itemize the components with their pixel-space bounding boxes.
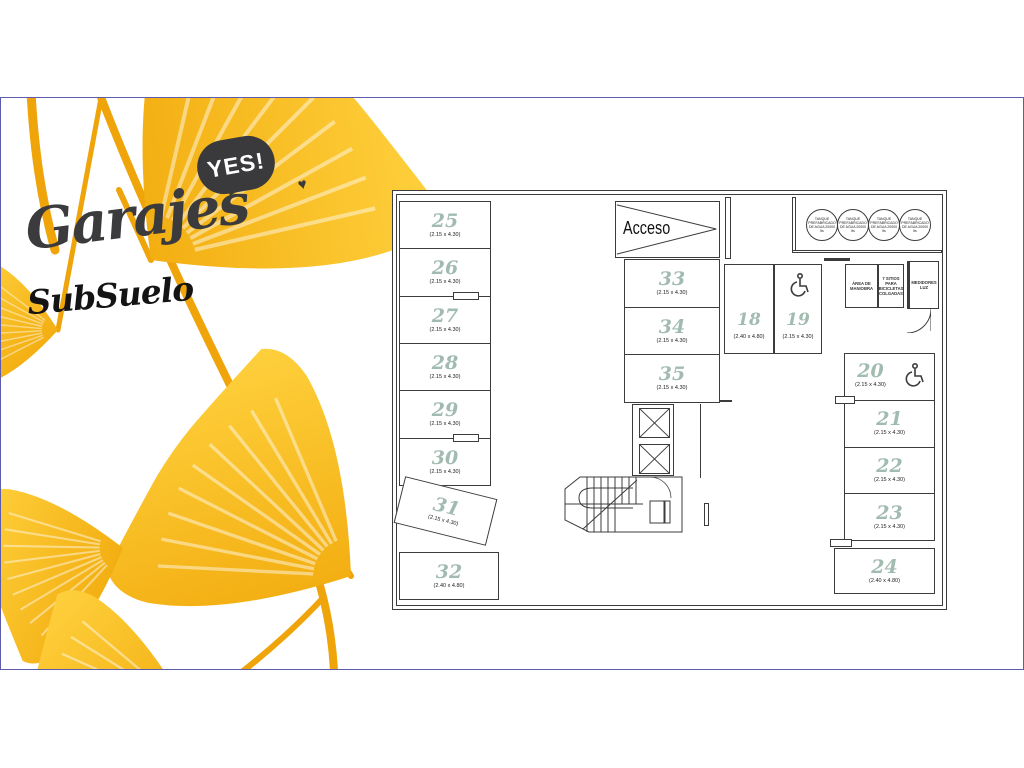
stall-dims: (2.15 x 4.30): [775, 335, 821, 341]
floor-plan: 25 (2.15 x 4.30) 26 (2.15 x 4.30) 27 (2.…: [392, 190, 947, 610]
wheelchair-icon: [787, 272, 811, 298]
stall-26: 26 (2.15 x 4.30): [400, 249, 490, 296]
brand-subtitle: SubSuelo: [26, 269, 195, 322]
stall-number: 29: [432, 401, 458, 420]
stall-dims: (2.15 x 4.30): [430, 233, 461, 239]
heart-icon: ♥: [296, 175, 309, 194]
stall-number: 33: [659, 270, 685, 289]
right-stall-column: 20 (2.15 x 4.30) 21 (2.15 x 4.30) 22 (2.…: [844, 353, 935, 541]
wall-stub: [720, 400, 732, 402]
stall-dims: (2.15 x 4.30): [430, 280, 461, 286]
stall-dims: (2.15 x 4.30): [874, 478, 905, 484]
stall-dims: (2.15 x 4.30): [657, 291, 688, 297]
corridor-wall: [700, 404, 701, 478]
brand-title: Garajes: [22, 171, 252, 264]
stall-34: 34 (2.15 x 4.30): [625, 308, 719, 356]
stall-21: 21 (2.15 x 4.30): [845, 401, 934, 448]
stall-29: 29 (2.15 x 4.30): [400, 391, 490, 438]
column-marker: [830, 539, 852, 547]
water-tank: TANQUE PREFABRICADO DE AGUA 20000 lts: [837, 209, 869, 241]
left-stall-column: 25 (2.15 x 4.30) 26 (2.15 x 4.30) 27 (2.…: [399, 201, 491, 486]
stall-dims: (2.40 x 4.80): [869, 579, 900, 585]
elevator-car: [639, 408, 670, 438]
room-medidores: MEDIDORES LUZ: [907, 261, 939, 309]
wall-stub: [824, 258, 850, 261]
acceso-ramp: Acceso: [615, 201, 720, 258]
stall-number: 26: [432, 259, 458, 278]
stall-number: 28: [432, 354, 458, 373]
stall-20: 20 (2.15 x 4.30): [845, 354, 934, 401]
stall-dims: (2.15 x 4.30): [430, 328, 461, 334]
tank-room-wall-left: [792, 197, 796, 253]
wall-segment: [725, 197, 731, 259]
flyer-frame: YES! ♥ Garajes SubSuelo 25 (2.15 x 4.30)…: [0, 97, 1024, 670]
stall-35: 35 (2.15 x 4.30): [625, 355, 719, 402]
pillar: [704, 503, 709, 526]
stall-number: 18: [725, 312, 773, 329]
stall-27: 27 (2.15 x 4.30): [400, 297, 490, 344]
stall-dims: (2.40 x 4.80): [725, 335, 773, 341]
stall-number: 22: [876, 457, 902, 476]
elevator-car: [639, 444, 670, 474]
stall-28: 28 (2.15 x 4.30): [400, 344, 490, 391]
tank-room-wall-bottom: [792, 250, 942, 253]
door-arc: [907, 309, 931, 333]
stall-dims: (2.40 x 4.80): [434, 584, 465, 590]
stall-23: 23 (2.15 x 4.30): [845, 494, 934, 540]
water-tank: TANQUE PREFABRICADO DE AGUA 20000 lts: [868, 209, 900, 241]
stall-19: 19 (2.15 x 4.30): [774, 264, 822, 354]
acceso-label: Acceso: [623, 218, 670, 239]
stall-number: 19: [775, 312, 821, 329]
stall-dims: (2.15 x 4.30): [874, 431, 905, 437]
column-marker: [453, 292, 479, 300]
stall-number: 24: [871, 558, 897, 577]
room-area-maniobra: ÁREA DE MANIOBRA: [845, 264, 878, 308]
stall-number: 34: [659, 318, 685, 337]
stall-number: 21: [876, 410, 902, 429]
stall-number: 23: [876, 504, 902, 523]
water-tank: TANQUE PREFABRICADO DE AGUA 20000 lts: [899, 209, 931, 241]
stall-dims: (2.15 x 4.30): [430, 470, 461, 476]
stall-number: 20: [857, 362, 883, 381]
stall-number: 30: [432, 449, 458, 468]
stall-22: 22 (2.15 x 4.30): [845, 448, 934, 495]
water-tank: TANQUE PREFABRICADO DE AGUA 20000 lts: [806, 209, 838, 241]
stall-dims: (2.15 x 4.30): [874, 525, 905, 531]
stall-number: 27: [432, 307, 458, 326]
stall-dims: (2.15 x 4.30): [657, 386, 688, 392]
stall-24: 24 (2.40 x 4.80): [834, 548, 935, 594]
stall-dims: (2.15 x 4.30): [657, 339, 688, 345]
stall-25: 25 (2.15 x 4.30): [400, 202, 490, 249]
column-marker: [835, 396, 855, 404]
brand-block: YES! ♥ Garajes SubSuelo: [1, 98, 381, 418]
stall-18: 18 (2.40 x 4.80): [724, 264, 774, 354]
stall-dims: (2.15 x 4.30): [430, 375, 461, 381]
staircase: [563, 476, 683, 533]
stall-32: 32 (2.40 x 4.80): [399, 552, 499, 600]
stall-number: 25: [432, 212, 458, 231]
stall-number: 35: [659, 365, 685, 384]
stall-33: 33 (2.15 x 4.30): [625, 260, 719, 308]
wheelchair-icon: [902, 362, 926, 388]
stall-dims: (2.15 x 4.30): [430, 422, 461, 428]
stall-dims: (2.15 x 4.30): [855, 383, 886, 389]
stall-number: 32: [436, 563, 462, 582]
middle-stall-column: 33 (2.15 x 4.30) 34 (2.15 x 4.30) 35 (2.…: [624, 259, 720, 403]
column-marker: [453, 434, 479, 442]
room-bicicletas: 7 SITIOS PARA BICICLETAS COLGADAS: [878, 264, 904, 308]
